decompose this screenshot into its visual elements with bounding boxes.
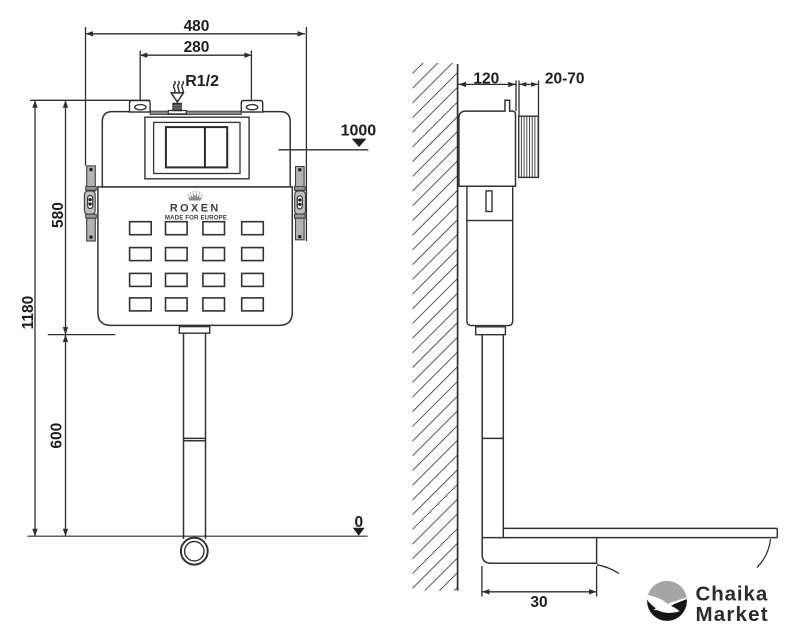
svg-text:480: 480 bbox=[184, 18, 210, 35]
svg-text:600: 600 bbox=[49, 423, 66, 449]
svg-text:580: 580 bbox=[50, 202, 67, 228]
svg-text:ROXEN: ROXEN bbox=[170, 203, 221, 215]
svg-text:20-70: 20-70 bbox=[545, 70, 585, 87]
svg-text:MADE FOR EUROPE: MADE FOR EUROPE bbox=[165, 214, 227, 221]
svg-text:Market: Market bbox=[696, 603, 769, 626]
svg-text:30: 30 bbox=[530, 594, 547, 611]
svg-text:1000: 1000 bbox=[341, 122, 377, 139]
svg-text:R1/2: R1/2 bbox=[185, 73, 219, 90]
svg-text:120: 120 bbox=[473, 70, 499, 87]
svg-text:280: 280 bbox=[184, 39, 210, 56]
svg-text:1180: 1180 bbox=[20, 296, 37, 330]
